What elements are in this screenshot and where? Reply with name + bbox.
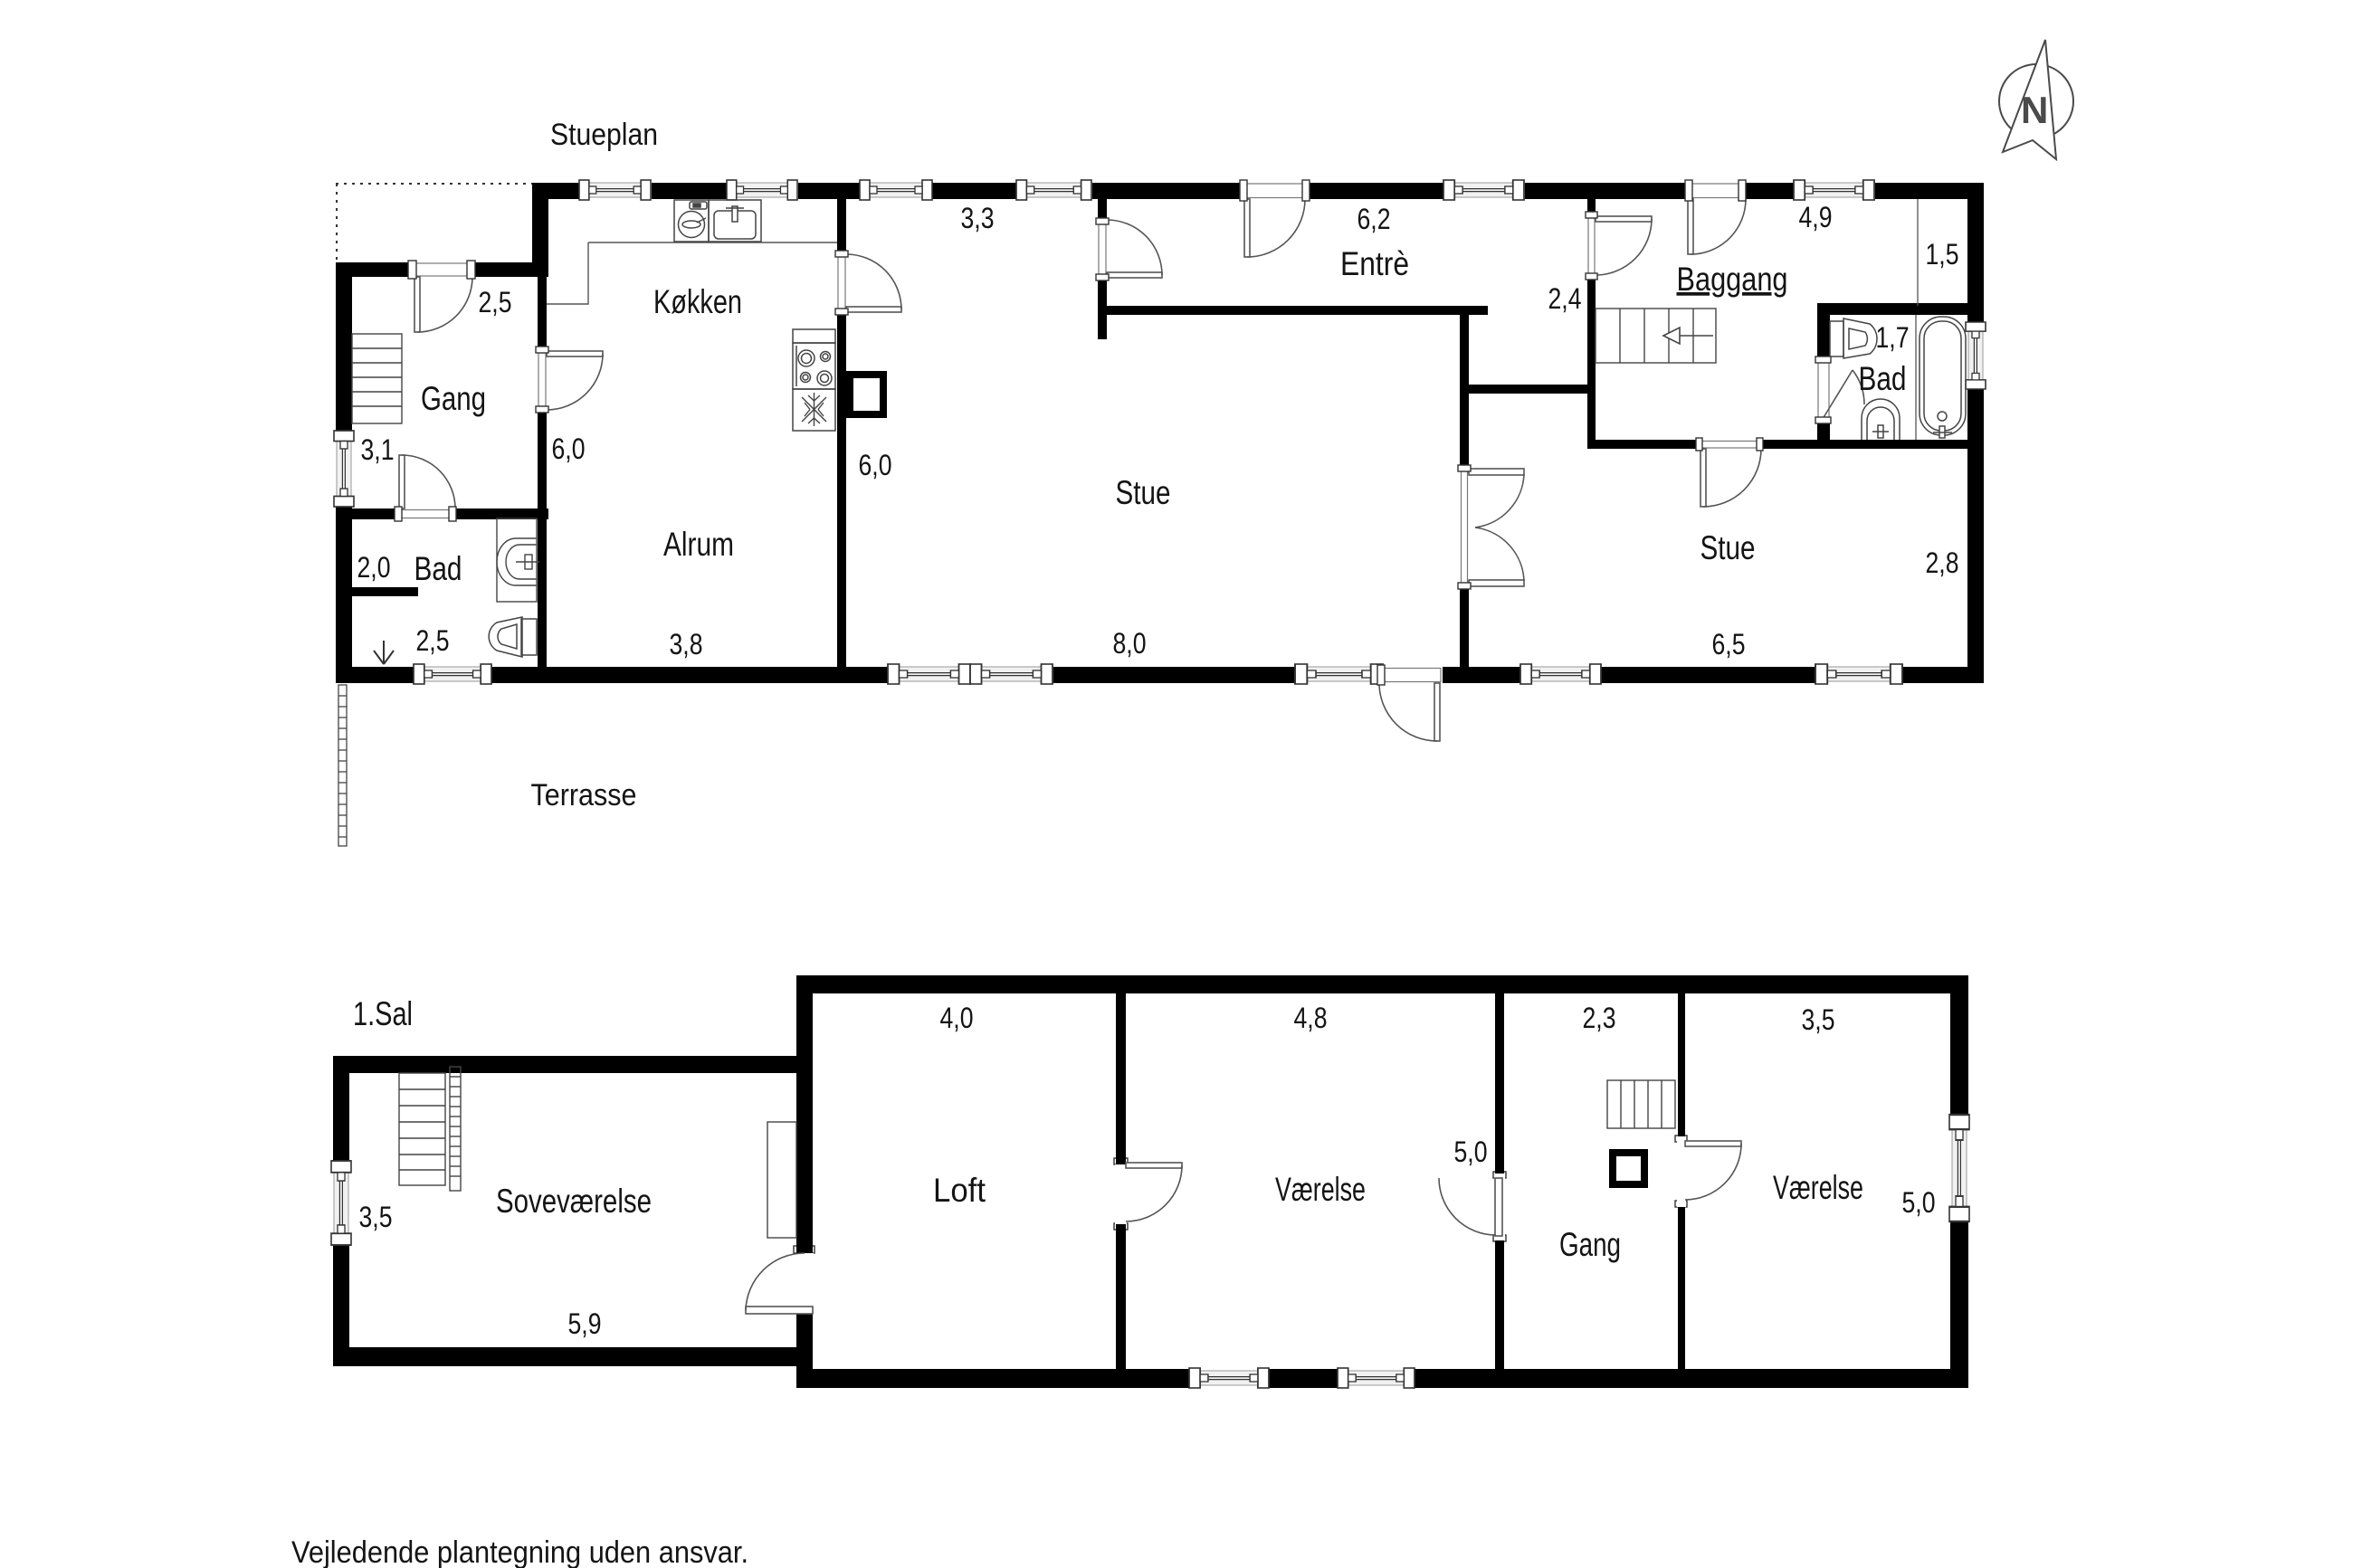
svg-text:1.Sal: 1.Sal [353,995,413,1032]
svg-text:3,5: 3,5 [1802,1003,1835,1036]
svg-text:4,9: 4,9 [1799,201,1833,233]
svg-text:Gang: Gang [421,380,486,417]
svg-text:2,5: 2,5 [416,624,450,657]
svg-text:6,5: 6,5 [1712,628,1746,660]
svg-text:8,0: 8,0 [1113,627,1147,660]
svg-text:Terrasse: Terrasse [531,778,637,813]
svg-text:N: N [2021,89,2048,131]
svg-text:Alrum: Alrum [663,526,734,563]
svg-text:Køkken: Køkken [653,283,742,320]
svg-text:Stue: Stue [1116,474,1171,511]
svg-text:3,1: 3,1 [361,433,395,466]
svg-text:2,4: 2,4 [1548,282,1582,315]
svg-text:5,9: 5,9 [568,1307,602,1340]
svg-text:6,0: 6,0 [859,449,892,481]
svg-text:4,0: 4,0 [940,1002,974,1034]
svg-text:Bad: Bad [414,550,462,587]
svg-text:Værelse: Værelse [1275,1171,1366,1208]
svg-text:Entrè: Entrè [1340,245,1409,282]
svg-text:1,7: 1,7 [1876,321,1910,354]
svg-text:2,3: 2,3 [1583,1002,1616,1034]
svg-text:1,5: 1,5 [1926,238,1959,271]
svg-text:Bad: Bad [1859,360,1907,397]
svg-text:3,8: 3,8 [670,628,703,660]
svg-text:2,0: 2,0 [357,551,391,584]
svg-text:Værelse: Værelse [1773,1169,1863,1206]
svg-text:Baggang: Baggang [1677,261,1788,298]
svg-text:Loft: Loft [933,1172,986,1209]
svg-text:Stue: Stue [1700,529,1756,566]
svg-text:3,5: 3,5 [359,1201,393,1233]
svg-text:6,2: 6,2 [1357,203,1391,235]
svg-text:5,0: 5,0 [1454,1136,1488,1168]
svg-text:3,3: 3,3 [961,202,995,234]
svg-text:Stueplan: Stueplan [550,118,658,152]
svg-text:Soveværelse: Soveværelse [496,1183,652,1220]
svg-text:Vejledende plantegning uden an: Vejledende plantegning uden ansvar. [291,1535,748,1568]
svg-text:6,0: 6,0 [552,432,586,465]
svg-text:Gang: Gang [1559,1226,1621,1263]
svg-text:2,8: 2,8 [1926,546,1959,579]
svg-text:5,0: 5,0 [1902,1186,1936,1219]
svg-text:2,5: 2,5 [479,286,512,318]
svg-text:4,8: 4,8 [1294,1002,1328,1034]
